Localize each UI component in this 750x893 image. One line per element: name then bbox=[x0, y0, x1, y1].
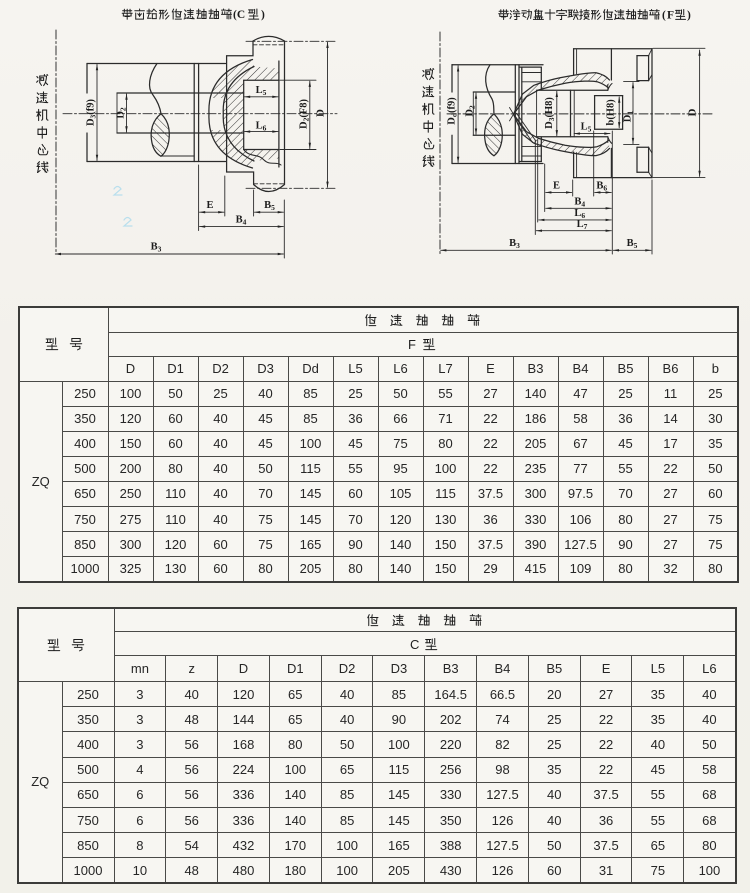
svg-text:D3(H8): D3(H8) bbox=[544, 97, 556, 129]
svg-text:(: ( bbox=[662, 10, 666, 22]
svg-text:L5: L5 bbox=[256, 85, 267, 97]
svg-text:L7: L7 bbox=[577, 219, 588, 231]
svg-text:B6: B6 bbox=[596, 181, 607, 193]
svg-text:D2: D2 bbox=[465, 105, 477, 117]
svg-text:B3: B3 bbox=[151, 242, 162, 254]
svg-text:D1: D1 bbox=[622, 111, 634, 123]
svg-text:Dd(f9): Dd(f9) bbox=[447, 97, 459, 125]
svg-text:B4: B4 bbox=[574, 196, 585, 208]
svg-text:b(H8): b(H8) bbox=[606, 99, 617, 126]
svg-text:B5: B5 bbox=[627, 238, 638, 250]
svg-text:B5: B5 bbox=[264, 200, 275, 212]
svg-text:L5: L5 bbox=[581, 122, 592, 134]
svg-text:D: D bbox=[687, 108, 699, 116]
svg-text:(C: (C bbox=[233, 9, 245, 21]
svg-text:D3(f9): D3(f9) bbox=[86, 98, 98, 126]
svg-text:): ) bbox=[261, 9, 265, 21]
svg-text:C: C bbox=[410, 637, 419, 652]
svg-text:B4: B4 bbox=[236, 215, 247, 227]
svg-text:L6: L6 bbox=[256, 120, 267, 132]
svg-text:F: F bbox=[408, 337, 416, 352]
svg-text:): ) bbox=[687, 10, 691, 22]
svg-text:D2(F8): D2(F8) bbox=[299, 99, 311, 130]
svg-text:D: D bbox=[315, 109, 327, 117]
svg-text:B3: B3 bbox=[509, 238, 520, 250]
svg-text:E: E bbox=[553, 181, 560, 192]
svg-text:F: F bbox=[667, 10, 674, 22]
svg-text:E: E bbox=[206, 200, 213, 211]
